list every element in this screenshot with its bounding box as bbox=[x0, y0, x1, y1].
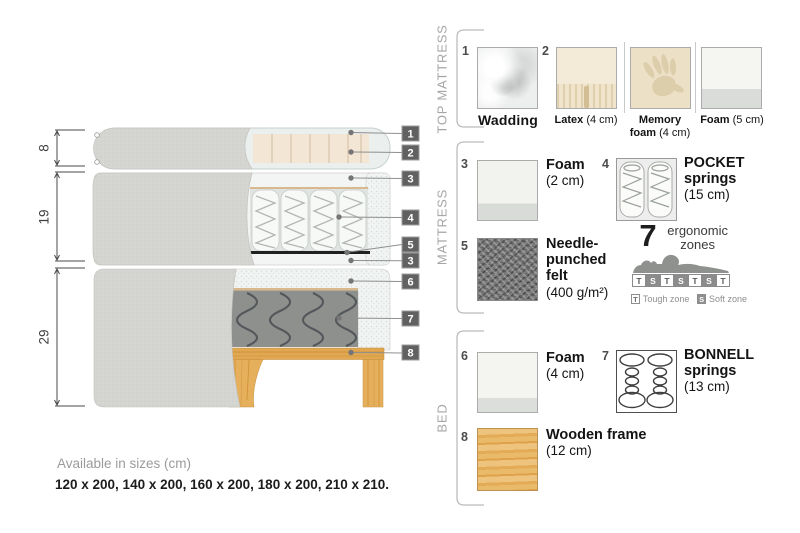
ergonomic-zones-block: 7 ergonomic zones T S T S T S T T Tough … bbox=[627, 221, 747, 304]
wadding-caption: Wadding bbox=[470, 112, 546, 129]
bed-fabric bbox=[94, 269, 240, 407]
legend-num-6: 6 bbox=[461, 349, 468, 363]
zone-strip: T S T S T S T bbox=[632, 274, 747, 287]
zone-cell: S bbox=[702, 274, 716, 287]
legend-num-7: 7 bbox=[602, 349, 609, 363]
wooden-frame-label: Wooden frame (12 cm) bbox=[546, 427, 696, 458]
bed-base-layer bbox=[94, 269, 390, 407]
dimension-label-topper: 8 bbox=[37, 144, 52, 152]
mattress-fabric bbox=[93, 173, 254, 265]
tag-7: 7 bbox=[407, 314, 413, 326]
zones-label: ergonomic zones bbox=[661, 224, 735, 251]
snap-button bbox=[95, 133, 100, 138]
dimension-labels: 8 19 29 bbox=[37, 144, 52, 344]
legend-num-1: 1 bbox=[462, 44, 469, 58]
dimension-lines bbox=[55, 130, 86, 406]
tag-3: 3 bbox=[407, 174, 413, 186]
divider bbox=[624, 42, 625, 113]
dimension-label-bed: 29 bbox=[37, 329, 52, 344]
bonnell-springs-drawing bbox=[617, 351, 674, 410]
zone-cell: T bbox=[716, 274, 730, 287]
wood-image bbox=[477, 428, 538, 491]
pocket-springs-drawing bbox=[617, 159, 676, 220]
hand-imprint bbox=[631, 48, 690, 108]
bonnell-springs-label: BONNELL springs (13 cm) bbox=[684, 347, 768, 395]
tag-2: 2 bbox=[407, 148, 413, 160]
zone-cell: S bbox=[674, 274, 688, 287]
zones-count: 7 bbox=[639, 221, 656, 250]
memory-foam-caption: Memory foam (4 cm) bbox=[626, 114, 694, 140]
tag-1: 1 bbox=[407, 129, 413, 141]
zone-cell: T bbox=[660, 274, 674, 287]
legend-num-8: 8 bbox=[461, 430, 468, 444]
wadding-image bbox=[477, 47, 538, 109]
infographic-page: 8 19 29 bbox=[0, 0, 800, 533]
foam-4cm-image bbox=[477, 352, 538, 413]
felt-image bbox=[477, 238, 538, 301]
legend-num-3: 3 bbox=[461, 157, 468, 171]
snap-button bbox=[95, 160, 100, 165]
legend-num-5: 5 bbox=[461, 239, 468, 253]
tag-4: 4 bbox=[407, 213, 414, 225]
bonnell-springs-image bbox=[616, 350, 677, 413]
zone-cell: S bbox=[646, 274, 660, 287]
dimension-label-mattress: 19 bbox=[37, 209, 52, 224]
pocket-springs-label: POCKET springs (15 cm) bbox=[684, 155, 768, 203]
tag-8: 8 bbox=[407, 348, 413, 360]
foam-5cm-caption: Foam (5 cm) bbox=[691, 114, 773, 127]
legend-num-2: 2 bbox=[542, 44, 549, 58]
section-title-bed: BED bbox=[435, 403, 450, 432]
availability-title: Available in sizes (cm) bbox=[57, 456, 191, 471]
tag-5: 5 bbox=[407, 240, 413, 252]
zone-cell: T bbox=[688, 274, 702, 287]
soft-zone-label: Soft zone bbox=[709, 294, 747, 304]
memory-foam-image bbox=[630, 47, 691, 109]
zone-cell: T bbox=[632, 274, 646, 287]
foam-2cm-image bbox=[477, 160, 538, 221]
legend-num-4: 4 bbox=[602, 157, 609, 171]
wooden-frame bbox=[226, 348, 384, 407]
latex-caption: Latex (4 cm) bbox=[541, 114, 631, 127]
ergonomic-zones-header: 7 ergonomic zones bbox=[627, 221, 747, 251]
topper-fabric bbox=[94, 128, 253, 169]
tag-6: 6 bbox=[407, 277, 413, 289]
pocket-springs-image bbox=[616, 158, 677, 221]
topper-layer bbox=[94, 128, 391, 169]
tough-zone-key: T bbox=[631, 294, 640, 304]
felt-label: Needle-punched felt (400 g/m²) bbox=[546, 236, 626, 300]
tag-3b: 3 bbox=[407, 256, 413, 268]
latex-image bbox=[556, 47, 617, 109]
section-title-mattress: MATTRESS bbox=[435, 189, 450, 265]
lying-person-icon bbox=[632, 252, 730, 274]
divider bbox=[695, 42, 696, 113]
tough-zone-label: Tough zone bbox=[643, 294, 690, 304]
section-title-top-mattress: TOP MATTRESS bbox=[435, 24, 450, 133]
foam-5cm-image bbox=[701, 47, 762, 109]
zone-legend: T Tough zone S Soft zone bbox=[631, 294, 747, 304]
soft-zone-key: S bbox=[697, 294, 706, 304]
availability-sizes: 120 x 200, 140 x 200, 160 x 200, 180 x 2… bbox=[55, 477, 389, 492]
